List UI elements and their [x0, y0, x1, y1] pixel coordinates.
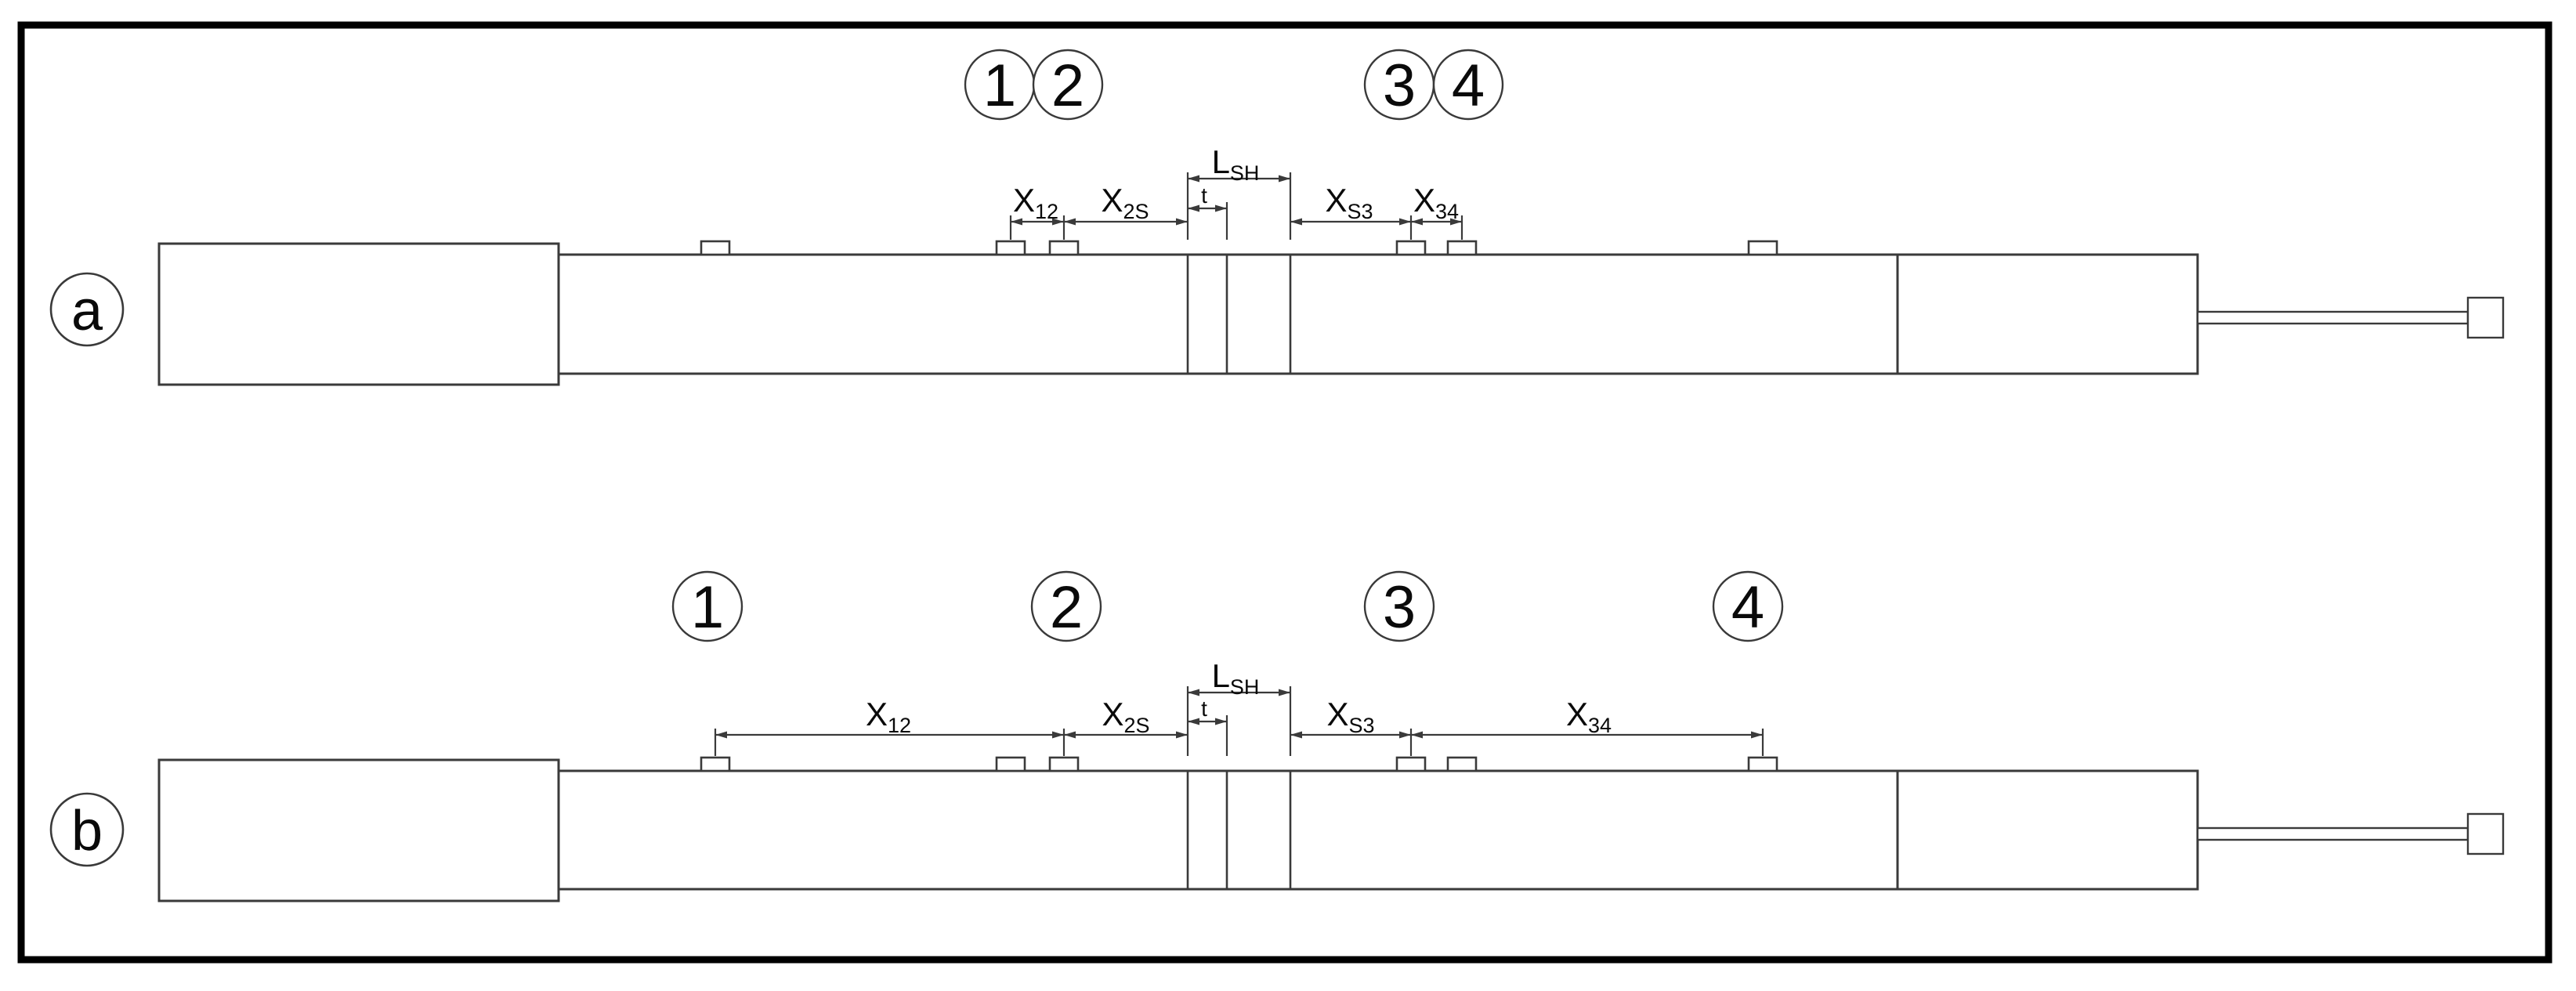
dimension-label-x34: X34: [1566, 696, 1612, 737]
dimension-arrow-lsh-left: [1188, 175, 1199, 183]
figure-label-a: a: [71, 280, 103, 342]
damper-rod: [2198, 312, 2468, 324]
dimension-arrow-x2s-left: [1064, 219, 1076, 226]
end-fixture-block: [1898, 255, 2198, 374]
dimension-label-x12: X12: [1013, 182, 1058, 223]
dimension-arrow-t-left: [1188, 205, 1199, 212]
gauge-callout-number-3: 3: [1383, 574, 1416, 641]
strain-gauge: [1448, 758, 1476, 771]
gauge-callout-number-4: 4: [1731, 574, 1764, 641]
dimension-arrow-xs3-right: [1399, 219, 1411, 226]
strain-gauge: [1050, 758, 1078, 771]
strain-gauge: [997, 758, 1025, 771]
pressure-bar: [559, 771, 1898, 889]
dimension-label-x2s: X2S: [1102, 696, 1149, 737]
dimension-arrow-lsh-right: [1279, 689, 1290, 696]
rod-end-plate: [2468, 814, 2503, 854]
figure-label-b: b: [71, 800, 103, 863]
damper-rod: [2198, 828, 2468, 840]
dimension-label-lsh: LSH: [1212, 143, 1260, 185]
dimension-arrow-x12-left: [715, 732, 727, 739]
gauge-callout-number-1: 1: [691, 574, 724, 641]
gauge-callout-number-4: 4: [1452, 52, 1485, 119]
dimension-arrow-x34-right: [1751, 732, 1763, 739]
dimension-label-x34: X34: [1413, 182, 1459, 223]
gauge-callout-number-2: 2: [1050, 574, 1083, 641]
pressure-bar: [559, 255, 1898, 374]
gauge-callout-number-3: 3: [1383, 52, 1416, 119]
dimension-arrow-x12-right: [1052, 732, 1064, 739]
dimension-arrow-x2s-right: [1176, 219, 1188, 226]
dimension-label-t: t: [1201, 696, 1207, 721]
dimension-arrow-x34-left: [1411, 732, 1423, 739]
dimension-arrow-x2s-right: [1176, 732, 1188, 739]
dimension-arrow-x34-left: [1411, 219, 1423, 226]
strain-gauge: [701, 758, 729, 771]
striker-housing-block: [159, 244, 559, 385]
dimension-label-x2s: X2S: [1101, 182, 1149, 223]
gauge-callout-number-1: 1: [983, 52, 1016, 119]
strain-gauge: [701, 241, 729, 255]
dimension-arrow-t-right: [1215, 205, 1227, 212]
dimension-label-x12: X12: [866, 696, 911, 737]
dimension-arrow-x2s-left: [1064, 732, 1076, 739]
hopkinson-bar-technical-drawing: a1234X12X2SLSHtXS3X34b1234X12X2SLSHtXS3X…: [0, 0, 2576, 991]
dimension-arrow-xs3-left: [1290, 219, 1302, 226]
dimension-arrow-x12-left: [1011, 219, 1022, 226]
strain-gauge: [1749, 758, 1777, 771]
drawing-stage: a1234X12X2SLSHtXS3X34b1234X12X2SLSHtXS3X…: [0, 0, 2576, 991]
dimension-label-lsh: LSH: [1212, 657, 1260, 699]
strain-gauge: [1749, 241, 1777, 255]
strain-gauge: [997, 241, 1025, 255]
dimension-arrow-lsh-right: [1279, 175, 1290, 183]
dimension-arrow-xs3-right: [1399, 732, 1411, 739]
dimension-arrow-t-right: [1215, 718, 1227, 725]
strain-gauge: [1448, 241, 1476, 255]
rod-end-plate: [2468, 298, 2503, 338]
striker-housing-block: [159, 760, 559, 901]
diagram-a: a1234X12X2SLSHtXS3X34: [51, 50, 2503, 385]
dimension-arrow-xs3-left: [1290, 732, 1302, 739]
dimension-label-t: t: [1201, 183, 1207, 208]
strain-gauge: [1050, 241, 1078, 255]
dimension-arrow-t-left: [1188, 718, 1199, 725]
gauge-callout-number-2: 2: [1051, 52, 1084, 119]
dimension-arrow-lsh-left: [1188, 689, 1199, 696]
strain-gauge: [1397, 241, 1425, 255]
dimension-label-xs3: XS3: [1325, 182, 1373, 223]
diagram-b: b1234X12X2SLSHtXS3X34: [51, 572, 2503, 901]
strain-gauge: [1397, 758, 1425, 771]
dimension-label-xs3: XS3: [1326, 696, 1374, 737]
end-fixture-block: [1898, 771, 2198, 889]
